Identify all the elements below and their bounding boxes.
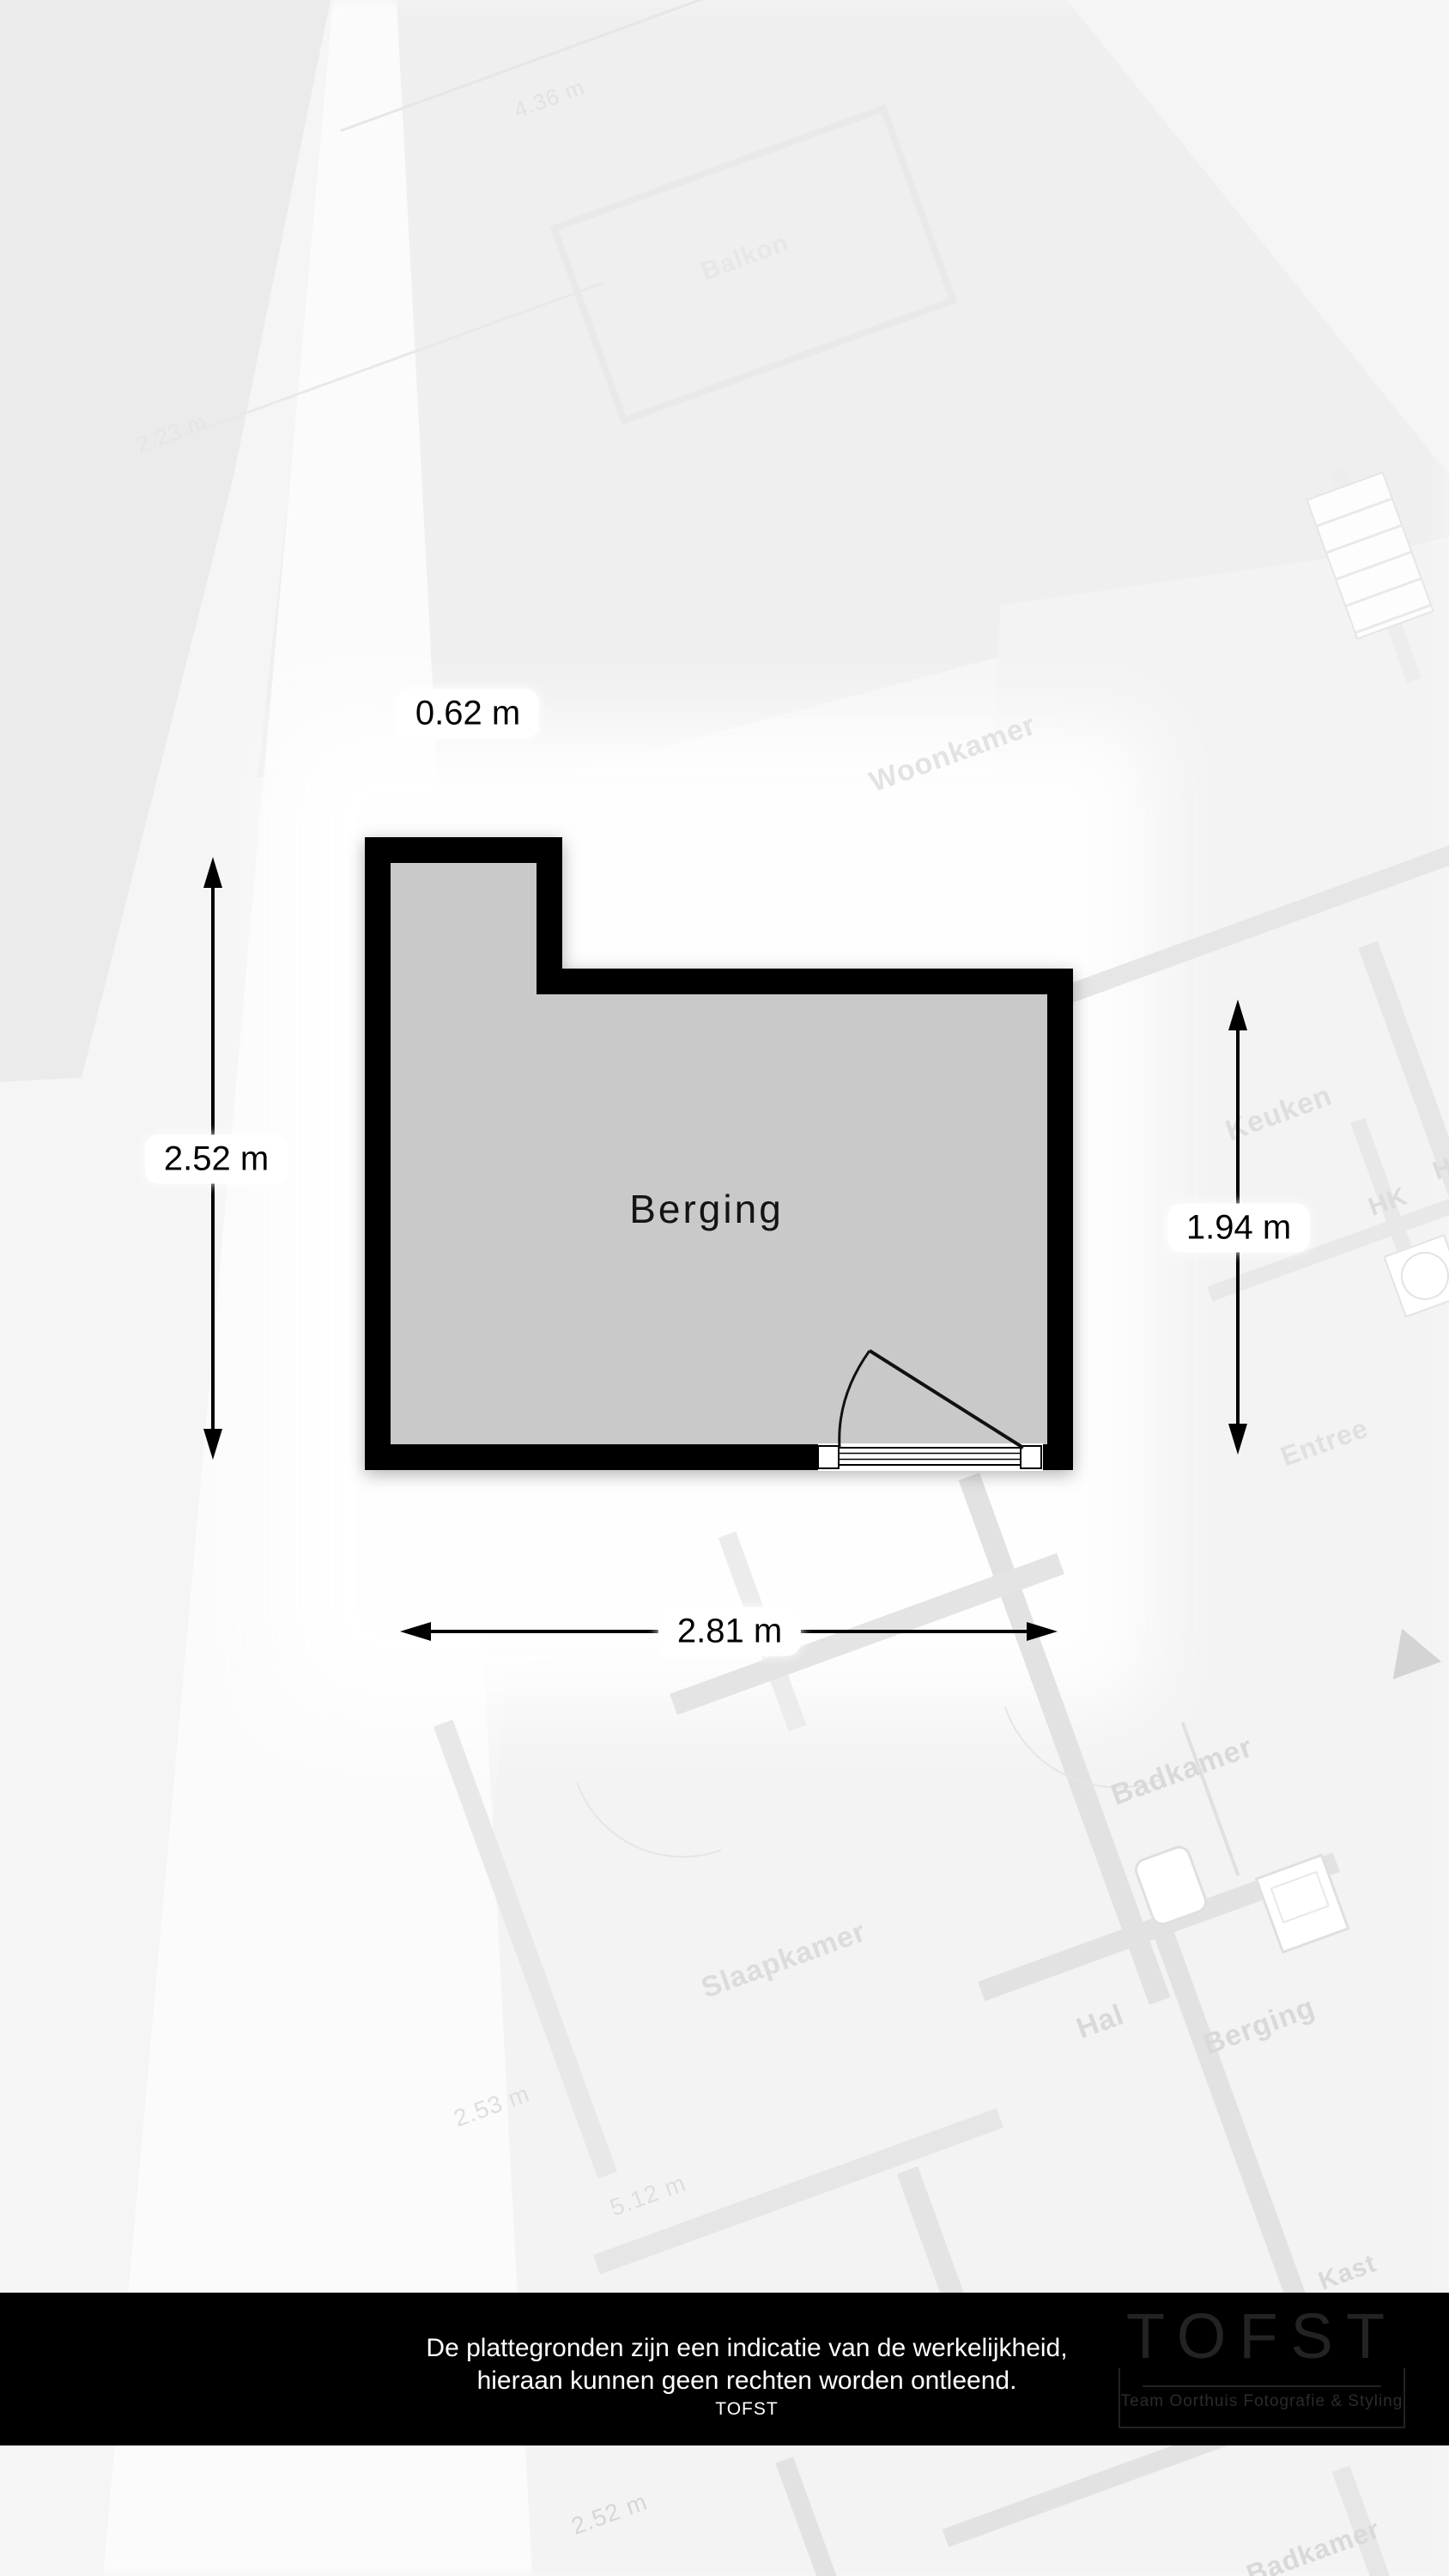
dim-label-left: 2.52 m [145,1135,288,1184]
dim-label-bottom: 2.81 m [658,1607,801,1656]
door-sill [839,1448,1021,1465]
footer-brand-text: TOFST [715,2399,778,2420]
door-post-left [818,1446,839,1468]
logo-title: TOFST [1118,2305,1406,2368]
dim-label-right: 1.94 m [1167,1204,1310,1253]
tofst-logo: TOFST Team Oorthuis Fotografie & Styling [1119,2305,1405,2433]
footer-disclaimer-line1: De plattegronden zijn een indicatie van … [426,2334,1067,2363]
door-post-right [1021,1446,1041,1468]
dim-label-top: 0.62 m [397,690,539,738]
logo-subtitle: Team Oorthuis Fotografie & Styling [1119,2392,1405,2411]
logo-divider [1143,2385,1381,2387]
footer-disclaimer-line2: hieraan kunnen geen rechten worden ontle… [477,2366,1017,2396]
berging-room-drawing [0,0,1449,2576]
floorplan-page: Woonkamer Balkon Keuken HK HK Entree Bad… [0,0,1449,2576]
room-floor [391,863,1047,1444]
room-name: Berging [629,1186,784,1232]
footer-bar: De plattegronden zijn een indicatie van … [0,2293,1449,2445]
